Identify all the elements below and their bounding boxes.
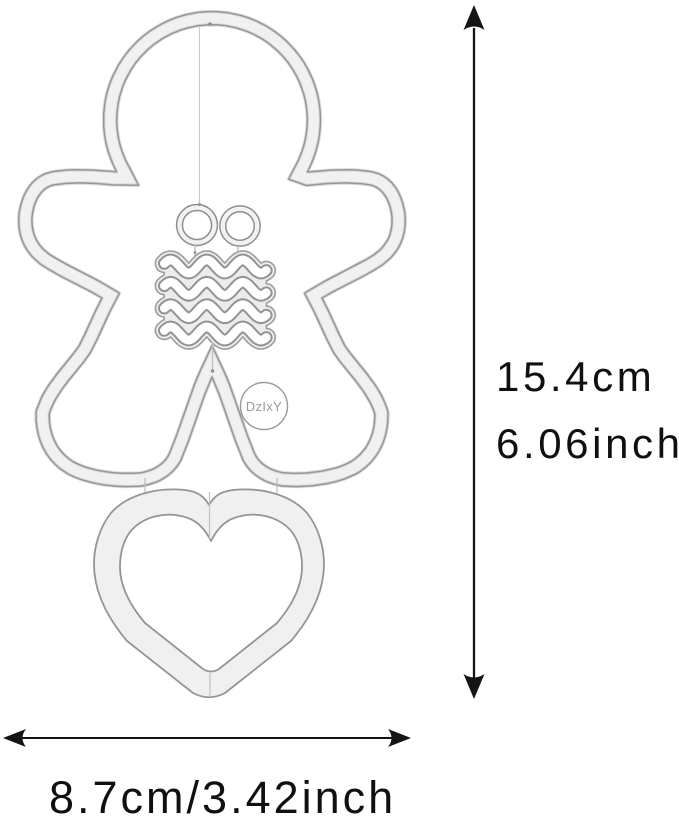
svg-text:8.7cm/3.42inch: 8.7cm/3.42inch [49, 772, 396, 823]
svg-text:DzIxY: DzIxY [246, 399, 282, 414]
svg-text:15.4cm: 15.4cm [496, 353, 655, 400]
svg-text:6.06inch: 6.06inch [496, 420, 679, 467]
